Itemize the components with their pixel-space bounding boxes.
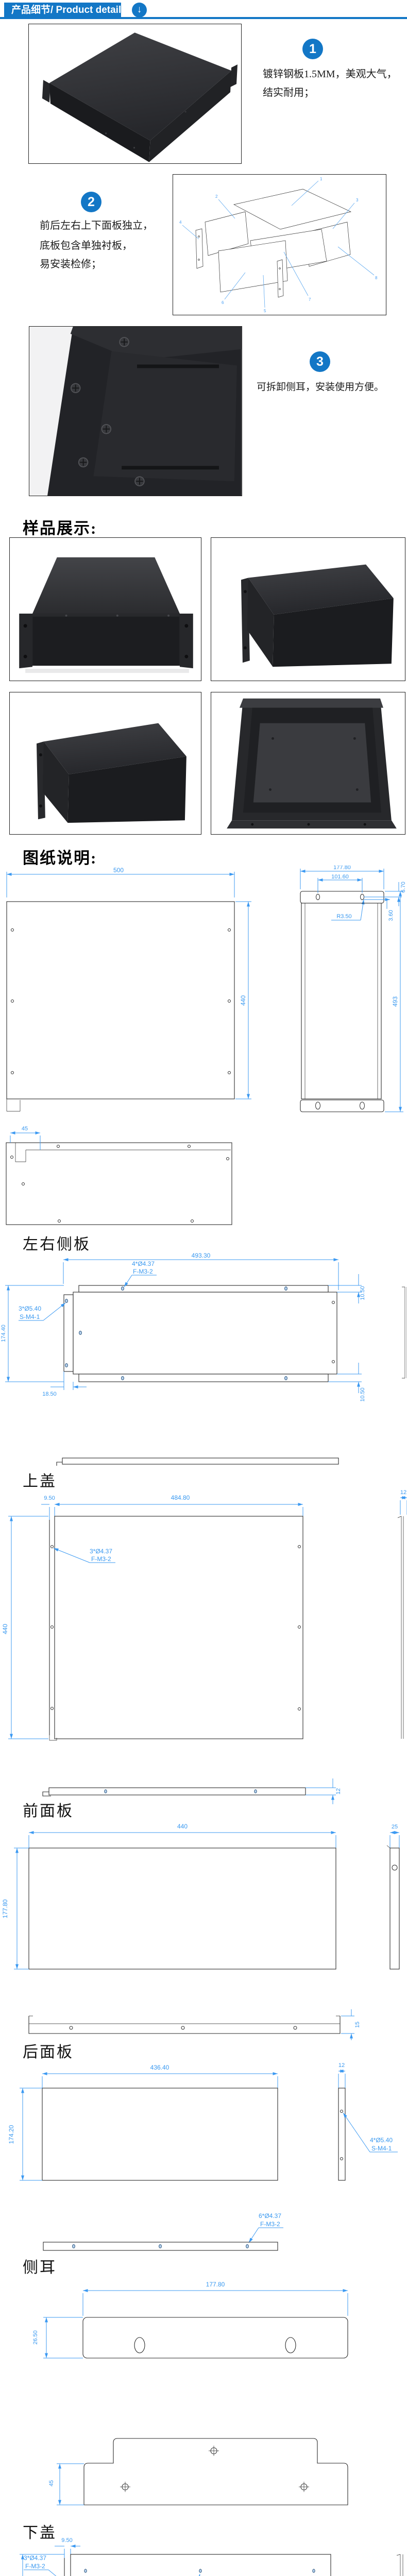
box-front-top-illustration bbox=[19, 557, 193, 673]
svg-text:174.20: 174.20 bbox=[8, 2125, 15, 2144]
bottom-cover-plan-view: 9.50 3*Ø4.37 F-M3-2 9*Ø5.40 BSO-3.5M3-10 bbox=[3, 2537, 403, 2576]
svg-text:500: 500 bbox=[113, 867, 124, 874]
feature-1-text-line-2: 结实耐用； bbox=[263, 84, 314, 99]
sample-photo-3 bbox=[9, 692, 201, 835]
feature-3-text: 可拆卸侧耳，安装使用方便。 bbox=[257, 379, 384, 393]
svg-text:45: 45 bbox=[22, 1126, 28, 1132]
samples-heading: 样品展示: bbox=[23, 515, 97, 538]
feature-2-text-line-3: 易安装检修； bbox=[40, 256, 101, 270]
svg-text:10.50: 10.50 bbox=[360, 1286, 366, 1300]
svg-text:12: 12 bbox=[400, 1489, 406, 1496]
svg-text:4*Ø5.40: 4*Ø5.40 bbox=[370, 2137, 393, 2144]
svg-text:493: 493 bbox=[392, 996, 399, 1007]
rear-panel-edge-view: 15 bbox=[29, 2009, 361, 2040]
svg-text:F-M3-2: F-M3-2 bbox=[25, 2563, 45, 2570]
sample-photo-4 bbox=[211, 692, 405, 835]
box-angled-illustration bbox=[241, 565, 394, 667]
svg-text:R3.50: R3.50 bbox=[336, 913, 351, 920]
sample-photo-2 bbox=[211, 537, 405, 681]
svg-text:26.50: 26.50 bbox=[32, 2330, 39, 2345]
feature-number-badge: 1 bbox=[302, 39, 323, 59]
header-divider bbox=[0, 17, 407, 19]
product-details-page: 产品细节/ Product details ↓ 1 镀锌钢板1.5MM，美观大气… bbox=[0, 0, 407, 2576]
svg-text:F-M3-2: F-M3-2 bbox=[260, 2221, 280, 2228]
hero-box-image bbox=[29, 24, 241, 163]
svg-text:6: 6 bbox=[222, 300, 224, 305]
svg-text:177.80: 177.80 bbox=[206, 2281, 225, 2288]
side-ear-front-view: 45 bbox=[48, 2438, 348, 2505]
svg-text:12: 12 bbox=[335, 1788, 342, 1794]
svg-text:436.40: 436.40 bbox=[150, 2064, 169, 2071]
svg-text:484.80: 484.80 bbox=[171, 1494, 190, 1501]
svg-text:177.80: 177.80 bbox=[333, 866, 351, 871]
panel-with-screws-illustration bbox=[29, 327, 241, 496]
side-panels-drawing: 493.30 4*Ø4.37 F-M3-2 3*Ø5.40 S-M4-1 174… bbox=[0, 1252, 407, 1466]
svg-text:3: 3 bbox=[356, 198, 359, 202]
feature-2-text-line-2: 底板包含单独衬板， bbox=[40, 237, 132, 252]
svg-text:9.50: 9.50 bbox=[61, 2537, 72, 2544]
side-ears-drawing: 6*Ø4.37 F-M3-2 177.80 26.50 bbox=[0, 2210, 407, 2514]
svg-text:101.60: 101.60 bbox=[331, 874, 349, 880]
open-box-interior-illustration bbox=[227, 699, 397, 828]
header-title-bar: 产品细节/ Product details bbox=[4, 3, 121, 18]
svg-text:12: 12 bbox=[338, 2062, 345, 2069]
svg-text:15: 15 bbox=[354, 2022, 361, 2028]
assembly-drawing: 500 440 177.80 101.60 6.70 3.60 R3.50 bbox=[0, 866, 407, 1231]
svg-text:F-M3-2: F-M3-2 bbox=[91, 1555, 111, 1563]
hero-product-photo bbox=[28, 24, 242, 164]
svg-text:3.60: 3.60 bbox=[388, 910, 394, 921]
top-cover-label: 上盖 bbox=[23, 1468, 57, 1491]
svg-text:440: 440 bbox=[2, 1624, 9, 1634]
svg-text:4*Ø4.37: 4*Ø4.37 bbox=[132, 1260, 155, 1267]
top-cover-drawing: 9.50 484.80 12 3*Ø4.37 F-M3-2 440 bbox=[0, 1489, 407, 1777]
svg-text:10.50: 10.50 bbox=[360, 1387, 366, 1402]
assembly-side-view: 177.80 101.60 6.70 3.60 R3.50 493 bbox=[300, 866, 406, 1112]
svg-text:9.50: 9.50 bbox=[44, 1495, 55, 1501]
front-panel-face-view: 440 25 177.80 bbox=[2, 1823, 399, 1969]
front-panel-drawing: 12 440 25 177.80 bbox=[0, 1777, 407, 2009]
front-panel-edge-view: 12 bbox=[43, 1778, 342, 1804]
svg-text:6.70: 6.70 bbox=[400, 882, 406, 892]
svg-text:45: 45 bbox=[48, 2480, 55, 2486]
page-title: 产品细节/ Product details bbox=[11, 5, 127, 15]
svg-text:F-M3-2: F-M3-2 bbox=[133, 1268, 153, 1275]
side-ear-closeup-photo bbox=[29, 326, 242, 496]
side-panel-plan-view: 493.30 4*Ø4.37 F-M3-2 3*Ø5.40 S-M4-1 174… bbox=[1, 1252, 407, 1402]
rear-panel-drawing: 15 436.40 174.20 12 4*Ø5.40 S-M4-1 bbox=[0, 2009, 407, 2210]
exploded-panels bbox=[196, 189, 351, 297]
rear-panel-face-view: 436.40 174.20 12 4*Ø5.40 S-M4-1 bbox=[8, 2062, 398, 2180]
exploded-diagram-image: 1 2 3 4 5 6 7 8 bbox=[173, 175, 386, 315]
side-ear-edge-view: 6*Ø4.37 F-M3-2 bbox=[43, 2212, 283, 2250]
svg-text:3*Ø5.40: 3*Ø5.40 bbox=[19, 1305, 41, 1312]
feature-number-badge: 2 bbox=[81, 192, 101, 212]
svg-text:25: 25 bbox=[392, 1824, 398, 1830]
svg-text:S-M4-1: S-M4-1 bbox=[20, 1313, 40, 1320]
sample-photo-1 bbox=[9, 537, 201, 681]
assembly-bottom-view: 45 bbox=[6, 1126, 232, 1225]
sample-3-image bbox=[10, 692, 201, 834]
top-cover-plan-view: 9.50 484.80 12 3*Ø4.37 F-M3-2 440 bbox=[2, 1489, 407, 1740]
sample-2-image bbox=[211, 538, 405, 681]
side-panel-edge-view bbox=[57, 1458, 338, 1466]
side-ear-plan-view: 177.80 26.50 bbox=[32, 2281, 348, 2358]
svg-text:3*Ø4.37: 3*Ø4.37 bbox=[90, 1548, 112, 1555]
sample-4-image bbox=[211, 692, 405, 834]
svg-text:S-M4-1: S-M4-1 bbox=[371, 2145, 392, 2152]
svg-text:7: 7 bbox=[309, 297, 311, 302]
svg-text:1: 1 bbox=[320, 177, 323, 181]
box-angled-illustration bbox=[37, 723, 186, 823]
assembly-front-view: 500 440 bbox=[7, 867, 251, 1111]
down-arrow-icon: ↓ bbox=[132, 3, 147, 18]
svg-text:440: 440 bbox=[177, 1823, 188, 1830]
closeup-image bbox=[29, 327, 242, 496]
bottom-cover-drawing: 9.50 3*Ø4.37 F-M3-2 9*Ø5.40 BSO-3.5M3-10 bbox=[0, 2514, 407, 2576]
svg-text:6*Ø4.37: 6*Ø4.37 bbox=[259, 2212, 281, 2219]
sample-1-image bbox=[10, 538, 201, 681]
svg-text:174.40: 174.40 bbox=[1, 1325, 7, 1342]
svg-text:4: 4 bbox=[179, 220, 182, 225]
svg-text:8: 8 bbox=[375, 276, 378, 280]
svg-text:177.80: 177.80 bbox=[2, 1899, 9, 1918]
feature-1-text-line-1: 镀锌钢板1.5MM，美观大气， bbox=[263, 65, 397, 80]
feature-number-badge: 3 bbox=[310, 351, 330, 372]
exploded-view-diagram: 1 2 3 4 5 6 7 8 bbox=[173, 174, 386, 315]
svg-text:493.30: 493.30 bbox=[192, 1252, 211, 1259]
drawings-heading: 图纸说明: bbox=[23, 845, 97, 868]
feature-2-text-line-1: 前后左右上下面板独立， bbox=[40, 217, 153, 232]
svg-text:2: 2 bbox=[215, 194, 218, 199]
svg-text:18.50: 18.50 bbox=[42, 1391, 57, 1397]
svg-text:3*Ø4.37: 3*Ø4.37 bbox=[24, 2554, 46, 2562]
svg-text:5: 5 bbox=[264, 309, 266, 313]
side-panels-label: 左右侧板 bbox=[23, 1231, 91, 1254]
black-enclosure-illustration bbox=[42, 32, 238, 162]
svg-text:440: 440 bbox=[240, 995, 247, 1006]
